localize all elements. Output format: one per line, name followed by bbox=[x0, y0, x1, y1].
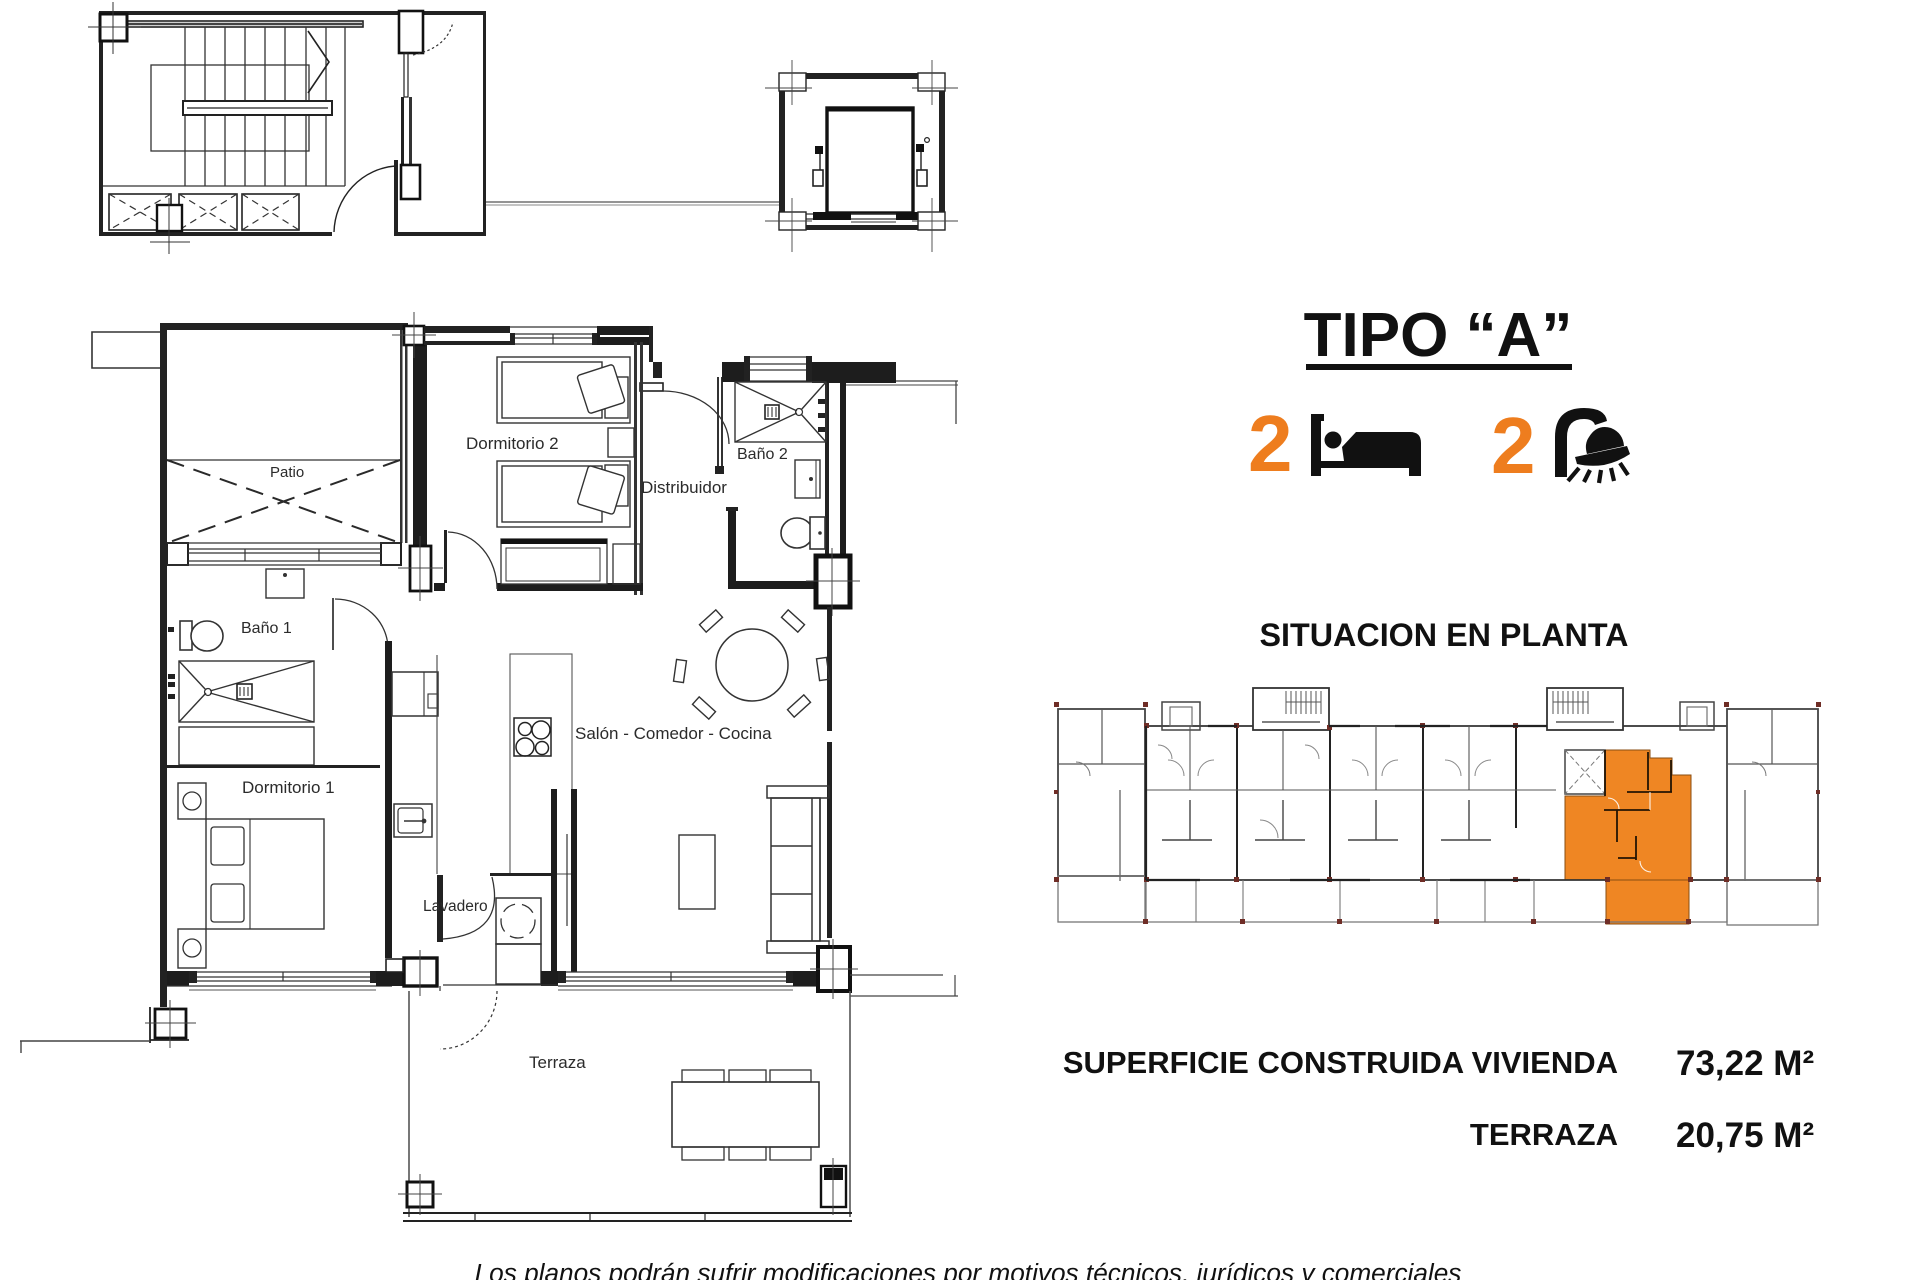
svg-text:Dormitorio 2: Dormitorio 2 bbox=[466, 434, 559, 453]
svg-text:20,75 M²: 20,75 M² bbox=[1676, 1116, 1814, 1155]
svg-text:Lavadero: Lavadero bbox=[423, 898, 488, 915]
svg-text:Dormitorio 1: Dormitorio 1 bbox=[242, 778, 335, 797]
svg-text:Los planos podrán sufrir modif: Los planos podrán sufrir modificaciones … bbox=[475, 1258, 1462, 1280]
svg-text:Baño 1: Baño 1 bbox=[241, 620, 292, 637]
svg-text:73,22 M²: 73,22 M² bbox=[1676, 1044, 1814, 1083]
svg-text:TERRAZA: TERRAZA bbox=[1470, 1117, 1618, 1152]
svg-text:Terraza: Terraza bbox=[529, 1053, 586, 1072]
svg-text:Distribuidor: Distribuidor bbox=[641, 478, 727, 497]
svg-text:SUPERFICIE CONSTRUIDA VIVIENDA: SUPERFICIE CONSTRUIDA VIVIENDA bbox=[1063, 1045, 1618, 1080]
svg-text:Salón - Comedor - Cocina: Salón - Comedor - Cocina bbox=[575, 724, 772, 743]
svg-text:Baño 2: Baño 2 bbox=[737, 446, 788, 463]
svg-text:SITUACION EN PLANTA: SITUACION EN PLANTA bbox=[1259, 617, 1628, 653]
svg-text:Patio: Patio bbox=[270, 464, 304, 481]
svg-text:2: 2 bbox=[1491, 401, 1536, 490]
svg-text:TIPO “A”: TIPO “A” bbox=[1304, 301, 1573, 370]
svg-text:2: 2 bbox=[1248, 399, 1293, 488]
